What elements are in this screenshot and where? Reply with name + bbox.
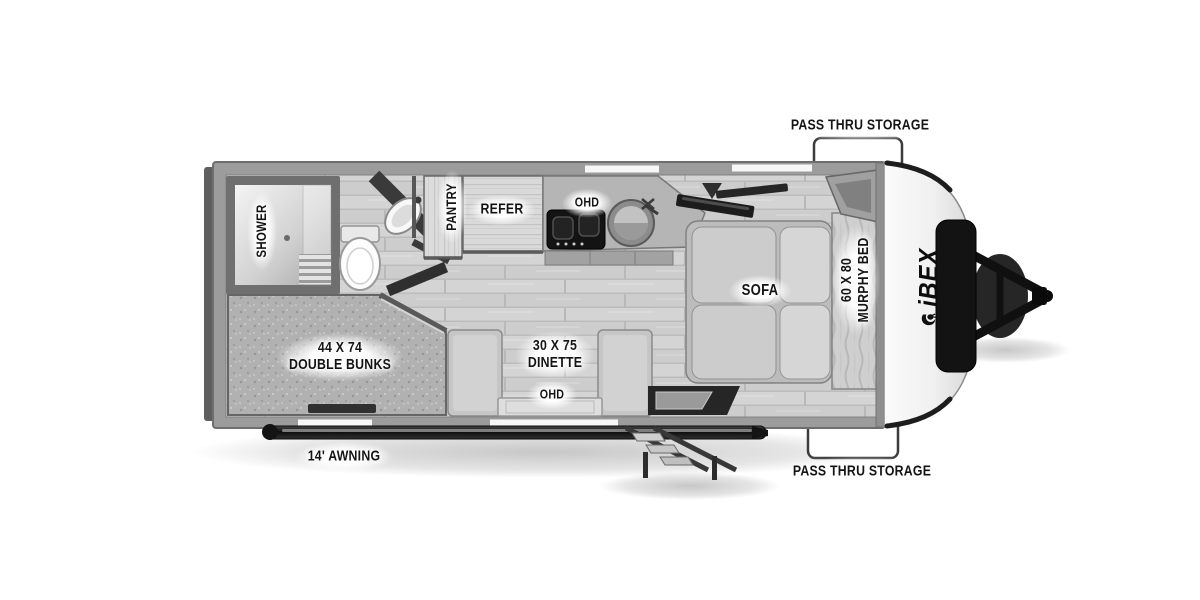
label-refer: REFER bbox=[467, 195, 536, 226]
sofa-seat-cushion bbox=[692, 305, 776, 379]
awning bbox=[262, 424, 768, 440]
double-bunks-size: 44 X 74 bbox=[289, 340, 391, 357]
rv-floorplan-canvas: PASS THRU STORAGE PASS THRU STORAGE SHOW… bbox=[0, 0, 1200, 600]
murphy-bed-size: 60 X 80 bbox=[839, 238, 856, 323]
entry-tread bbox=[656, 392, 712, 409]
label-double-bunks: 44 X 74 DOUBLE BUNKS bbox=[276, 333, 404, 381]
kitchen-lower-cabinets bbox=[545, 251, 673, 265]
window-bottom-dinette bbox=[490, 420, 618, 427]
ibex-goat-icon bbox=[920, 311, 939, 328]
shower-drain bbox=[284, 235, 290, 241]
awning-bar bbox=[264, 426, 766, 439]
label-pass-thru-storage-top: PASS THRU STORAGE bbox=[778, 111, 943, 142]
dinette-cushion bbox=[453, 335, 497, 411]
burner bbox=[579, 214, 599, 236]
label-pass-thru-storage-bottom: PASS THRU STORAGE bbox=[780, 457, 945, 488]
double-bunks-name: DOUBLE BUNKS bbox=[289, 357, 391, 374]
pantry-base bbox=[424, 256, 462, 260]
brand-logo-text: iBEX bbox=[914, 248, 945, 307]
label-murphy-bed: 60 X 80 MURPHY BED bbox=[832, 224, 880, 335]
label-awning: 14' AWNING bbox=[295, 442, 394, 473]
toilet-seat bbox=[347, 248, 373, 284]
brand-logo: iBEX bbox=[914, 248, 945, 328]
label-sofa: SOFA bbox=[729, 275, 792, 307]
label-shower: SHOWER bbox=[247, 191, 277, 270]
shower-step-grate bbox=[299, 254, 331, 284]
window-top-kitchen bbox=[585, 166, 659, 173]
label-ohd-kitchen: OHD bbox=[562, 189, 613, 218]
label-ohd-dinette: OHD bbox=[527, 381, 578, 410]
sofa-back-cushion bbox=[780, 305, 830, 379]
window-bottom-bunks bbox=[298, 420, 372, 427]
bunk-window-shade bbox=[308, 404, 376, 413]
steps-shadow bbox=[600, 472, 780, 500]
hitch-ball bbox=[1041, 290, 1053, 302]
murphy-bed-name: MURPHY BED bbox=[856, 238, 873, 323]
dinette-cushion bbox=[603, 335, 647, 411]
dinette-size: 30 X 75 bbox=[528, 338, 582, 355]
label-dinette: 30 X 75 DINETTE bbox=[515, 331, 596, 379]
refrigerator-base bbox=[463, 250, 543, 254]
burner bbox=[553, 217, 573, 239]
label-pantry: PANTRY bbox=[437, 170, 467, 244]
dinette-name: DINETTE bbox=[528, 355, 582, 372]
awning-end-cap bbox=[262, 424, 278, 440]
window-top-sofa bbox=[732, 165, 812, 172]
floorplan-drawing bbox=[0, 0, 1200, 600]
